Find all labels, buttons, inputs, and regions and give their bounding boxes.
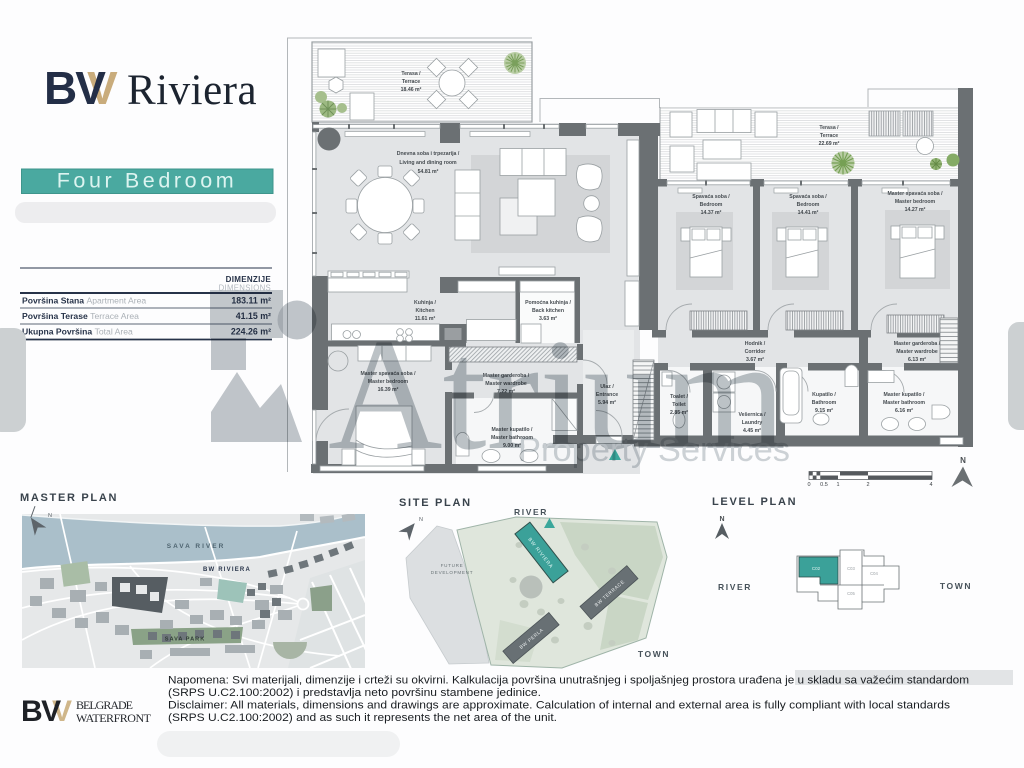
svg-text:14.37 m²: 14.37 m² bbox=[701, 210, 722, 216]
svg-text:4: 4 bbox=[929, 482, 932, 488]
svg-text:C03: C03 bbox=[847, 566, 855, 571]
svg-text:BV: BV bbox=[44, 62, 106, 114]
svg-text:Spavaća soba /: Spavaća soba / bbox=[692, 194, 730, 200]
svg-text:N: N bbox=[719, 516, 724, 523]
svg-text:Master garderoba /: Master garderoba / bbox=[894, 341, 941, 347]
svg-text:0.5: 0.5 bbox=[820, 482, 828, 488]
svg-text:Bathroom: Bathroom bbox=[812, 400, 837, 406]
svg-text:RIVER: RIVER bbox=[718, 582, 752, 592]
svg-text:RIVER: RIVER bbox=[514, 507, 548, 517]
svg-text:(SRPS U.C2.100:2002) and as su: (SRPS U.C2.100:2002) and as such it repr… bbox=[168, 712, 557, 724]
svg-text:BV: BV bbox=[21, 695, 61, 728]
svg-text:SAVA PARK: SAVA PARK bbox=[165, 637, 206, 643]
svg-text:TOWN: TOWN bbox=[940, 581, 972, 591]
svg-text:TOWN: TOWN bbox=[638, 649, 670, 659]
svg-text:22.69 m²: 22.69 m² bbox=[819, 141, 840, 147]
svg-text:14.27 m²: 14.27 m² bbox=[905, 207, 926, 213]
svg-text:Disclaimer: All materials, dim: Disclaimer: All materials, dimensions an… bbox=[168, 700, 951, 712]
svg-text:Four Bedroom: Four Bedroom bbox=[57, 169, 238, 193]
svg-text:LEVEL PLAN: LEVEL PLAN bbox=[712, 496, 797, 508]
svg-text:54.81 m²: 54.81 m² bbox=[418, 169, 439, 175]
svg-text:Master wardrobe: Master wardrobe bbox=[896, 349, 938, 355]
svg-text:14.41 m²: 14.41 m² bbox=[798, 210, 819, 216]
svg-text:Master bathroom: Master bathroom bbox=[883, 400, 925, 406]
svg-text:SITE PLAN: SITE PLAN bbox=[399, 497, 472, 509]
svg-text:Terasa /: Terasa / bbox=[819, 125, 839, 131]
svg-text:9.15 m²: 9.15 m² bbox=[815, 408, 833, 414]
svg-text:18.46 m²: 18.46 m² bbox=[401, 87, 422, 93]
svg-text:Bedroom: Bedroom bbox=[700, 202, 723, 208]
svg-text:Napomena: Svi materijali, dime: Napomena: Svi materijali, dimenzije i cr… bbox=[168, 675, 969, 687]
svg-text:BW RIVIERA: BW RIVIERA bbox=[203, 567, 251, 573]
svg-text:Dnevna soba i trpezarija /: Dnevna soba i trpezarija / bbox=[397, 151, 460, 157]
svg-text:6.13 m²: 6.13 m² bbox=[908, 357, 926, 363]
svg-text:Terrace: Terrace bbox=[402, 79, 420, 85]
svg-text:1: 1 bbox=[836, 482, 839, 488]
svg-text:Spavaća soba /: Spavaća soba / bbox=[789, 194, 827, 200]
svg-text:Property Services: Property Services bbox=[518, 431, 790, 469]
svg-text:BELGRADE: BELGRADE bbox=[76, 698, 133, 712]
svg-text:WATERFRONT: WATERFRONT bbox=[76, 711, 152, 725]
svg-text:C04: C04 bbox=[870, 571, 878, 576]
svg-text:Bedroom: Bedroom bbox=[797, 202, 820, 208]
svg-text:N: N bbox=[48, 513, 52, 519]
svg-text:MASTER PLAN: MASTER PLAN bbox=[20, 492, 118, 504]
svg-text:2: 2 bbox=[866, 482, 869, 488]
svg-text:Ukupna Površina Total Area: Ukupna Površina Total Area bbox=[22, 327, 133, 337]
svg-text:6.16 m²: 6.16 m² bbox=[895, 408, 913, 414]
svg-text:N: N bbox=[419, 517, 423, 523]
svg-text:Master kupatilo /: Master kupatilo / bbox=[884, 392, 925, 398]
svg-text:N: N bbox=[960, 456, 966, 465]
svg-text:Terrace: Terrace bbox=[820, 133, 838, 139]
svg-text:DEVELOPMENT: DEVELOPMENT bbox=[431, 570, 473, 575]
svg-text:(SRPS U.C2.100:2002) i predsta: (SRPS U.C2.100:2002) i predstavlja neto … bbox=[168, 687, 541, 699]
svg-text:0: 0 bbox=[807, 482, 810, 488]
svg-text:FUTURE: FUTURE bbox=[441, 563, 464, 568]
svg-text:Living and dining room: Living and dining room bbox=[399, 160, 457, 166]
svg-text:Kupatilo /: Kupatilo / bbox=[812, 392, 836, 398]
svg-text:Površina Stana Apartment Area: Površina Stana Apartment Area bbox=[22, 296, 146, 306]
svg-text:Master spavaća soba /: Master spavaća soba / bbox=[887, 191, 943, 197]
svg-text:Master bedroom: Master bedroom bbox=[895, 199, 936, 205]
svg-text:C05: C05 bbox=[847, 591, 855, 596]
svg-text:C02: C02 bbox=[812, 566, 821, 571]
svg-text:SAVA RIVER: SAVA RIVER bbox=[167, 543, 226, 550]
svg-text:Riviera: Riviera bbox=[127, 67, 257, 114]
svg-text:Terasa /: Terasa / bbox=[401, 71, 421, 77]
svg-text:Površina Terase Terrace Area: Površina Terase Terrace Area bbox=[22, 311, 139, 321]
